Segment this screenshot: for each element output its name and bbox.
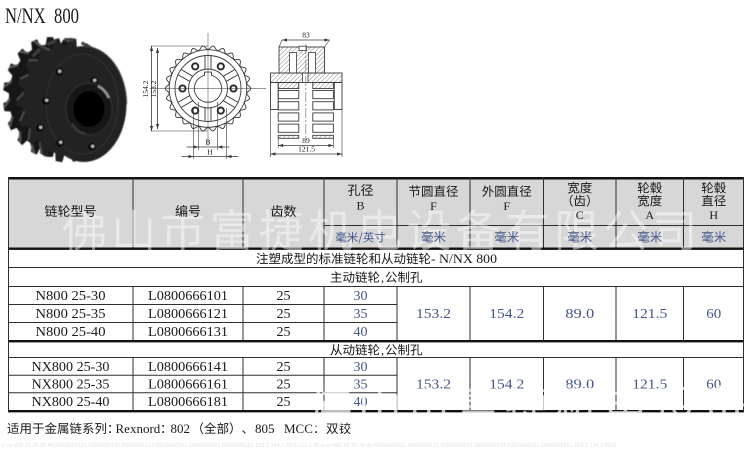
svg-text:L0800666121: L0800666121 bbox=[148, 306, 228, 321]
svg-text:154.2: 154.2 bbox=[489, 306, 524, 321]
svg-text:40: 40 bbox=[354, 324, 368, 339]
svg-text:121.5: 121.5 bbox=[298, 145, 315, 154]
svg-text:30: 30 bbox=[354, 359, 368, 374]
svg-text:L0800666141: L0800666141 bbox=[148, 359, 228, 374]
svg-text:30: 30 bbox=[354, 288, 368, 303]
svg-text:L0800666161: L0800666161 bbox=[148, 377, 228, 392]
svg-text:25: 25 bbox=[277, 288, 291, 303]
svg-text:NX800 25-40: NX800 25-40 bbox=[32, 394, 110, 409]
svg-text:L0800666131: L0800666131 bbox=[148, 324, 228, 339]
svg-text:121.5: 121.5 bbox=[632, 306, 667, 321]
svg-text:Rexnord: Rexnord bbox=[116, 421, 161, 436]
svg-text:N/NX 800: N/NX 800 bbox=[5, 3, 79, 28]
svg-text:35: 35 bbox=[354, 377, 368, 392]
svg-text:- N/NX 800: - N/NX 800 bbox=[431, 252, 497, 266]
svg-text:802: 802 bbox=[171, 421, 191, 436]
svg-text:,: , bbox=[381, 343, 384, 357]
svg-text:F: F bbox=[430, 199, 437, 213]
svg-text:N800 25-40: N800 25-40 bbox=[36, 324, 106, 339]
svg-text:N800 25-35: N800 25-35 bbox=[36, 306, 106, 321]
svg-text:805: 805 bbox=[255, 421, 275, 436]
svg-text:NX800 25-30: NX800 25-30 bbox=[32, 359, 110, 374]
svg-text:L0800666181: L0800666181 bbox=[148, 394, 228, 409]
svg-text:25: 25 bbox=[277, 359, 291, 374]
svg-text:B: B bbox=[205, 138, 210, 147]
svg-text:25: 25 bbox=[277, 394, 291, 409]
svg-text:n nx 800 25 30 35 40 l08006661: n nx 800 25 30 35 40 l0800666101 l080066… bbox=[2, 443, 616, 449]
svg-text:H: H bbox=[709, 208, 718, 222]
svg-text:C: C bbox=[576, 208, 584, 222]
svg-text:153.2: 153.2 bbox=[416, 376, 451, 391]
svg-text:L0800666101: L0800666101 bbox=[148, 288, 228, 303]
svg-text:H: H bbox=[207, 148, 213, 157]
svg-text:153.2: 153.2 bbox=[416, 306, 451, 321]
svg-text:F: F bbox=[503, 199, 510, 213]
svg-text:A: A bbox=[645, 208, 654, 222]
svg-text:89.0: 89.0 bbox=[565, 306, 595, 321]
svg-text:40: 40 bbox=[354, 394, 368, 409]
svg-text:,: , bbox=[381, 271, 384, 285]
svg-text:N800 25-30: N800 25-30 bbox=[36, 288, 106, 303]
svg-text:153.2: 153.2 bbox=[149, 80, 158, 97]
svg-text:25: 25 bbox=[277, 306, 291, 321]
svg-text:MCC: MCC bbox=[284, 421, 313, 436]
svg-text:35: 35 bbox=[354, 306, 368, 321]
svg-text:NX800 25-35: NX800 25-35 bbox=[32, 377, 110, 392]
svg-text:25: 25 bbox=[277, 377, 291, 392]
svg-text:83: 83 bbox=[302, 31, 310, 40]
svg-text:B: B bbox=[356, 199, 364, 213]
svg-text:60: 60 bbox=[706, 306, 721, 321]
svg-text:25: 25 bbox=[277, 324, 291, 339]
